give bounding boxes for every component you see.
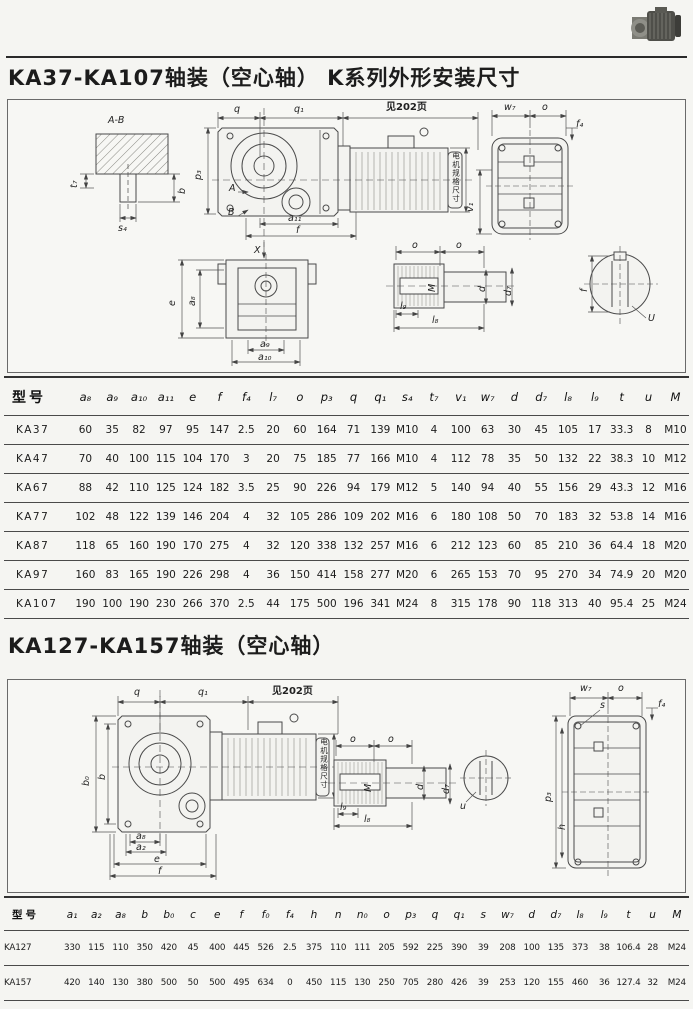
column-header-dim: p₃ — [399, 897, 423, 931]
dim-label-o: o — [456, 241, 462, 251]
dim-value: 53.8 — [608, 503, 635, 532]
dim-value: 36 — [581, 532, 608, 561]
dim-label-q1: q₁ — [198, 688, 208, 698]
dim-value: 175 — [287, 590, 314, 619]
column-header-dim: a₁₁ — [152, 377, 179, 416]
dim-label-section-ab: A-B — [108, 116, 124, 126]
dim-label-d: d — [478, 286, 488, 292]
table-row-KA97: KA9716083165190226298436150414158277M206… — [4, 561, 689, 590]
dim-value: 450 — [302, 966, 326, 1001]
dim-value: 275 — [206, 532, 233, 561]
dim-label-l9: l₉ — [400, 302, 406, 312]
dim-value: 118 — [72, 532, 99, 561]
model-cell: KA107 — [4, 590, 72, 619]
dim-value: 266 — [179, 590, 206, 619]
dim-value: 60 — [287, 416, 314, 445]
column-header-dim: d₇ — [528, 377, 555, 416]
column-header-dim: o — [287, 377, 314, 416]
dim-value: 36 — [260, 561, 287, 590]
dim-value: 18 — [635, 532, 662, 561]
dim-label-e: e — [154, 855, 160, 865]
dim-label-f4: f₄ — [658, 700, 665, 710]
dim-value: 110 — [108, 931, 132, 966]
dim-value: 270 — [555, 561, 582, 590]
dim-value: 45 — [528, 416, 555, 445]
dim-value: 74.9 — [608, 561, 635, 590]
dim-value: 77 — [340, 445, 367, 474]
dim-value: 6 — [421, 532, 448, 561]
dim-value: 83 — [99, 561, 126, 590]
dim-value: 94 — [474, 474, 501, 503]
column-header-dim: b — [133, 897, 157, 931]
dim-value: 17 — [581, 416, 608, 445]
dim-value: 4 — [233, 532, 260, 561]
dim-label-f: f — [296, 226, 299, 236]
section-mark-x: X — [254, 246, 261, 256]
dim-label-a8: a₈ — [188, 296, 198, 306]
column-header-dim: s — [471, 897, 495, 931]
view-label-b: B — [228, 208, 235, 218]
column-header-dim: a₂ — [84, 897, 108, 931]
dim-value: 75 — [287, 445, 314, 474]
dim-value: 330 — [60, 931, 84, 966]
dim-value: 445 — [229, 931, 253, 966]
dim-value: M12 — [394, 474, 421, 503]
dim-label-m: M — [364, 784, 374, 792]
dim-value: 35 — [501, 445, 528, 474]
dim-value: 111 — [350, 931, 374, 966]
diagram-ka127-ka157: q q₁ 见202页 b₀ b a₈ a₂ e f o o M d d₇ l₉ … — [7, 679, 686, 893]
dim-value: 139 — [152, 503, 179, 532]
dim-value: 257 — [367, 532, 394, 561]
dim-value: 166 — [367, 445, 394, 474]
column-header-dim: w₇ — [474, 377, 501, 416]
dim-value: 124 — [179, 474, 206, 503]
dim-value: 338 — [313, 532, 340, 561]
column-header-dim: d — [520, 897, 544, 931]
dim-value: 277 — [367, 561, 394, 590]
dim-label-d7: d₇ — [504, 286, 514, 296]
table-row-KA107: KA1071901001902302663702.544175500196341… — [4, 590, 689, 619]
dim-value: 38 — [592, 931, 616, 966]
dim-value: 64.4 — [608, 532, 635, 561]
column-header-dim: u — [641, 897, 665, 931]
column-header-dim: u — [635, 377, 662, 416]
dim-value: 208 — [495, 931, 519, 966]
dim-value: 115 — [326, 966, 350, 1001]
diagram2-line-art — [8, 680, 683, 892]
dim-value: 196 — [340, 590, 367, 619]
dim-value: 4 — [233, 503, 260, 532]
model-cell: KA67 — [4, 474, 72, 503]
dim-value: 42 — [99, 474, 126, 503]
dim-value: 212 — [447, 532, 474, 561]
dim-value: 158 — [340, 561, 367, 590]
dim-value: 60 — [501, 532, 528, 561]
column-header-model: 型号 — [4, 377, 72, 416]
dim-value: 71 — [340, 416, 367, 445]
column-header-dim: q₁ — [367, 377, 394, 416]
dim-value: 120 — [287, 532, 314, 561]
dim-value: 3 — [233, 445, 260, 474]
dim-value: 85 — [528, 532, 555, 561]
dim-value: 135 — [544, 931, 568, 966]
dim-value: 140 — [447, 474, 474, 503]
dim-label-l8: l₈ — [432, 316, 438, 326]
dim-value: 100 — [99, 590, 126, 619]
dim-label-s: s — [600, 701, 605, 711]
dim-value: 45 — [181, 931, 205, 966]
dim-label-b0: b₀ — [82, 776, 92, 786]
dim-value: 341 — [367, 590, 394, 619]
dim-value: 230 — [152, 590, 179, 619]
dim-value: 132 — [340, 532, 367, 561]
dim-value: M24 — [665, 931, 689, 966]
column-header-dim: a₁₀ — [126, 377, 153, 416]
dim-value: M20 — [662, 561, 689, 590]
dim-value: 94 — [340, 474, 367, 503]
dimension-table-ka127-ka157: 型号a₁a₂a₈bb₀ceff₀f₄hnn₀op₃qq₁sw₇dd₇l₈l₉tu… — [4, 896, 689, 1001]
dim-label-a10: a₁₀ — [258, 353, 271, 363]
dim-value: 226 — [313, 474, 340, 503]
dim-value: 2.5 — [278, 931, 302, 966]
column-header-dim: a₈ — [72, 377, 99, 416]
dim-value: M20 — [394, 561, 421, 590]
column-header-dim: t — [608, 377, 635, 416]
dim-value: 70 — [501, 561, 528, 590]
dim-value: 495 — [229, 966, 253, 1001]
table-row-KA157: KA15742014013038050050500495634045011513… — [4, 966, 689, 1001]
dim-label-m: M — [428, 284, 438, 292]
model-cell: KA87 — [4, 532, 72, 561]
dim-value: 500 — [157, 966, 181, 1001]
table-row-KA37: KA3760358297951472.5206016471139M1041006… — [4, 416, 689, 445]
dim-value: 6 — [421, 503, 448, 532]
dim-value: 315 — [447, 590, 474, 619]
section-title-ka127-ka157: KA127-KA157轴装（空心轴） — [8, 630, 334, 660]
column-header-dim: n — [326, 897, 350, 931]
dim-value: 180 — [447, 503, 474, 532]
column-header-dim: l₈ — [568, 897, 592, 931]
dim-value: 298 — [206, 561, 233, 590]
model-cell: KA97 — [4, 561, 72, 590]
header-row: 型号a₈a₉a₁₀a₁₁eff₄l₇op₃qq₁s₄t₇v₁w₇dd₇l₈l₉t… — [4, 377, 689, 416]
dim-value: M24 — [394, 590, 421, 619]
dim-label-o: o — [618, 684, 624, 694]
dim-value: 139 — [367, 416, 394, 445]
dim-value: M24 — [665, 966, 689, 1001]
table-row-KA47: KA4770401001151041703207518577166M104112… — [4, 445, 689, 474]
dim-value: 39 — [471, 966, 495, 1001]
dim-label-w7: w₇ — [504, 103, 516, 113]
dim-value: 190 — [152, 532, 179, 561]
dim-value: M12 — [662, 445, 689, 474]
dim-label-q: q — [234, 105, 240, 115]
dim-value: 414 — [313, 561, 340, 590]
model-cell: KA47 — [4, 445, 72, 474]
motor-size-note: 电机规格尺寸 — [452, 152, 460, 203]
dim-value: 130 — [108, 966, 132, 1001]
dim-value: 253 — [495, 966, 519, 1001]
dim-label-o: o — [412, 241, 418, 251]
dim-value: 420 — [157, 931, 181, 966]
dim-value: 50 — [501, 503, 528, 532]
dim-value: 118 — [528, 590, 555, 619]
dim-value: 4 — [421, 445, 448, 474]
dim-label-l8: l₈ — [364, 815, 370, 825]
column-header-dim: d — [501, 377, 528, 416]
dim-value: 100 — [447, 416, 474, 445]
dim-value: 280 — [423, 966, 447, 1001]
model-cell: KA37 — [4, 416, 72, 445]
dim-value: 123 — [474, 532, 501, 561]
dim-value: 82 — [126, 416, 153, 445]
dim-label-d: d — [416, 784, 426, 790]
dim-value: 36 — [592, 966, 616, 1001]
dim-value: 6 — [421, 561, 448, 590]
column-header-dim: q — [423, 897, 447, 931]
dim-value: 147 — [206, 416, 233, 445]
dim-value: 97 — [152, 416, 179, 445]
dim-value: 78 — [474, 445, 501, 474]
dim-value: 32 — [641, 966, 665, 1001]
column-header-dim: l₉ — [581, 377, 608, 416]
dim-value: 178 — [474, 590, 501, 619]
dim-label-a11: a₁₁ — [288, 214, 301, 224]
column-header-dim: s₄ — [394, 377, 421, 416]
dim-value: 140 — [84, 966, 108, 1001]
dim-value: 390 — [447, 931, 471, 966]
view-label-a: A — [229, 184, 236, 194]
dim-value: 32 — [260, 503, 287, 532]
dim-value: 165 — [126, 561, 153, 590]
dim-value: 105 — [555, 416, 582, 445]
dim-value: M16 — [662, 503, 689, 532]
column-header-dim: a₉ — [99, 377, 126, 416]
dim-value: 160 — [126, 532, 153, 561]
dim-value: 146 — [179, 503, 206, 532]
dim-value: 190 — [152, 561, 179, 590]
dim-value: 32 — [581, 503, 608, 532]
column-header-dim: b₀ — [157, 897, 181, 931]
dim-value: 350 — [133, 931, 157, 966]
dim-value: 375 — [302, 931, 326, 966]
column-header-dim: l₉ — [592, 897, 616, 931]
dim-value: 95.4 — [608, 590, 635, 619]
dim-value: 110 — [326, 931, 350, 966]
dim-value: 115 — [152, 445, 179, 474]
dim-label-s4: s₄ — [118, 224, 127, 234]
dim-value: 153 — [474, 561, 501, 590]
dim-value: 0 — [278, 966, 302, 1001]
gearmotor-photo — [631, 5, 683, 47]
dim-value: 50 — [181, 966, 205, 1001]
dim-value: 105 — [287, 503, 314, 532]
dim-value: 265 — [447, 561, 474, 590]
header-row: 型号a₁a₂a₈bb₀ceff₀f₄hnn₀op₃qq₁sw₇dd₇l₈l₉tu… — [4, 897, 689, 931]
dim-value: 164 — [313, 416, 340, 445]
dim-value: 185 — [313, 445, 340, 474]
dim-value: 634 — [254, 966, 278, 1001]
dim-value: 4 — [233, 561, 260, 590]
dim-label-t7: t₇ — [70, 180, 80, 188]
dim-value: 38.3 — [608, 445, 635, 474]
dim-value: 112 — [447, 445, 474, 474]
dim-value: 370 — [206, 590, 233, 619]
dim-value: 20 — [260, 445, 287, 474]
dim-label-q1: q₁ — [294, 105, 304, 115]
dim-value: 102 — [72, 503, 99, 532]
dim-value: 29 — [581, 474, 608, 503]
dim-value: 120 — [520, 966, 544, 1001]
model-cell: KA157 — [4, 966, 60, 1001]
dim-value: M10 — [394, 445, 421, 474]
dim-label-o: o — [542, 103, 548, 113]
column-header-dim: c — [181, 897, 205, 931]
dim-label-a9: a₉ — [260, 340, 270, 350]
dim-value: 106.4 — [616, 931, 640, 966]
dim-value: 205 — [374, 931, 398, 966]
dim-value: 100 — [520, 931, 544, 966]
column-header-dim: v₁ — [447, 377, 474, 416]
dim-value: 179 — [367, 474, 394, 503]
column-header-dim: M — [662, 377, 689, 416]
dim-value: 250 — [374, 966, 398, 1001]
dim-value: M16 — [662, 474, 689, 503]
dim-label-f4: f₄ — [576, 120, 583, 130]
dim-value: 33.3 — [608, 416, 635, 445]
dim-value: 88 — [72, 474, 99, 503]
see-page-note: 见202页 — [272, 687, 313, 697]
dim-label-a8: a₈ — [136, 832, 146, 842]
dim-value: 44 — [260, 590, 287, 619]
column-header-dim: e — [205, 897, 229, 931]
dim-label-u: u — [460, 802, 466, 812]
dim-value: 156 — [555, 474, 582, 503]
dim-value: 34 — [581, 561, 608, 590]
dim-label-b: b — [98, 774, 108, 780]
dim-value: 426 — [447, 966, 471, 1001]
dim-value: 43.3 — [608, 474, 635, 503]
dim-value: 4 — [421, 416, 448, 445]
dim-value: 526 — [254, 931, 278, 966]
model-cell: KA127 — [4, 931, 60, 966]
dim-value: 40 — [501, 474, 528, 503]
dim-value: 35 — [99, 416, 126, 445]
dim-value: 400 — [205, 931, 229, 966]
column-header-dim: a₈ — [108, 897, 132, 931]
dim-value: 70 — [528, 503, 555, 532]
dim-value: 32 — [260, 532, 287, 561]
dim-value: 108 — [474, 503, 501, 532]
column-header-dim: o — [374, 897, 398, 931]
dim-value: 190 — [72, 590, 99, 619]
dim-value: 125 — [152, 474, 179, 503]
dim-value: M16 — [394, 503, 421, 532]
column-header-model: 型号 — [4, 897, 60, 931]
dim-label-b: b — [178, 188, 188, 194]
dim-value: 40 — [581, 590, 608, 619]
dim-value: 210 — [555, 532, 582, 561]
dim-value: 2.5 — [233, 416, 260, 445]
table-row-KA87: KA8711865160190170275432120338132257M166… — [4, 532, 689, 561]
column-header-dim: n₀ — [350, 897, 374, 931]
dim-label-p3: p₃ — [194, 170, 204, 180]
dim-value: 28 — [641, 931, 665, 966]
dim-label-p3: p₃ — [544, 792, 554, 802]
dim-label-a2: a₂ — [136, 843, 146, 853]
dim-value: 104 — [179, 445, 206, 474]
column-header-dim: f₄ — [278, 897, 302, 931]
dim-value: 20 — [260, 416, 287, 445]
model-cell: KA77 — [4, 503, 72, 532]
dim-label-u: U — [648, 314, 655, 324]
dim-value: 286 — [313, 503, 340, 532]
dim-value: 110 — [126, 474, 153, 503]
dim-label-circle-f: f — [580, 289, 590, 292]
dim-value: 170 — [206, 445, 233, 474]
dim-value: 170 — [179, 532, 206, 561]
dim-value: 95 — [179, 416, 206, 445]
dim-label-v1: v₁ — [466, 203, 476, 212]
dim-value: M20 — [662, 532, 689, 561]
dim-value: 132 — [555, 445, 582, 474]
dim-value: 90 — [501, 590, 528, 619]
dim-label-h: h — [558, 824, 568, 830]
dim-value: 313 — [555, 590, 582, 619]
dim-value: M10 — [394, 416, 421, 445]
dim-label-o: o — [388, 735, 394, 745]
motor-size-note: 电机规格尺寸 — [320, 738, 328, 789]
section-title-ka37-ka107: KA37-KA107轴装（空心轴） K系列外形安装尺寸 — [8, 62, 520, 92]
dim-value: 90 — [287, 474, 314, 503]
catalog-page: KA37-KA107轴装（空心轴） K系列外形安装尺寸 — [0, 0, 693, 1009]
column-header-dim: f₀ — [254, 897, 278, 931]
dim-value: 63 — [474, 416, 501, 445]
dim-value: 130 — [350, 966, 374, 1001]
dim-value: 2.5 — [233, 590, 260, 619]
dim-value: 705 — [399, 966, 423, 1001]
dim-value: 127.4 — [616, 966, 640, 1001]
dim-value: 500 — [313, 590, 340, 619]
diagram-ka37-ka107: A-B t₇ b s₄ q q₁ 见202页 p₃ A B a₁₁ f X e … — [7, 99, 686, 373]
dim-value: 50 — [528, 445, 555, 474]
table-row-KA77: KA7710248122139146204432105286109202M166… — [4, 503, 689, 532]
diagram1-line-art — [8, 100, 683, 370]
dim-value: 150 — [287, 561, 314, 590]
dimension-table-ka37-ka107: 型号a₈a₉a₁₀a₁₁eff₄l₇op₃qq₁s₄t₇v₁w₇dd₇l₈l₉t… — [4, 376, 689, 619]
dim-value: 20 — [635, 561, 662, 590]
column-header-dim: p₃ — [313, 377, 340, 416]
dim-value: 30 — [501, 416, 528, 445]
dim-value: 226 — [179, 561, 206, 590]
dim-value: 8 — [635, 416, 662, 445]
dim-value: 65 — [99, 532, 126, 561]
column-header-dim: h — [302, 897, 326, 931]
dim-value: 3.5 — [233, 474, 260, 503]
column-header-dim: w₇ — [495, 897, 519, 931]
column-header-dim: f — [229, 897, 253, 931]
column-header-dim: t — [616, 897, 640, 931]
dim-value: 8 — [421, 590, 448, 619]
dim-value: 10 — [635, 445, 662, 474]
dim-value: 420 — [60, 966, 84, 1001]
dim-value: 25 — [635, 590, 662, 619]
dim-value: 55 — [528, 474, 555, 503]
column-header-dim: l₇ — [260, 377, 287, 416]
see-page-note: 见202页 — [386, 103, 427, 113]
header-rule — [6, 56, 687, 58]
